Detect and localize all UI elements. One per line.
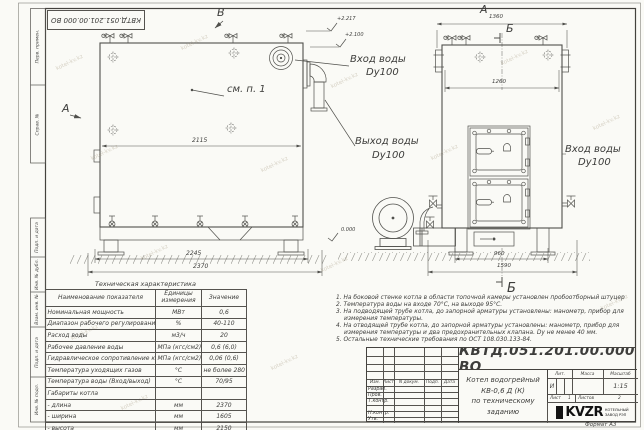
dim-2245: 2245 bbox=[186, 251, 201, 257]
col-podp: Подп. bbox=[424, 379, 441, 386]
cell-value bbox=[202, 388, 247, 400]
col-list: Лист bbox=[383, 379, 394, 386]
side-flange-right bbox=[561, 50, 571, 72]
table-row: Габариты котла bbox=[46, 388, 247, 400]
ground-hatch-right bbox=[338, 252, 590, 261]
table-row: - ширина мм 1605 bbox=[46, 411, 247, 423]
logo-mark bbox=[556, 406, 563, 419]
table-row: - длина мм 2370 bbox=[46, 399, 247, 411]
note-line: 1. На боковой стенке котла в области топ… bbox=[336, 295, 636, 302]
sheets-value: 2 bbox=[618, 396, 621, 401]
technical-notes: 1. На боковой стенке котла в области топ… bbox=[336, 295, 636, 344]
frame-label-inv-dubl: Инв. № дубл. bbox=[30, 257, 45, 292]
cell-parameter: Расход воды bbox=[46, 330, 156, 342]
see-note-callout: см. п. 1 bbox=[227, 85, 266, 95]
inlet-callout-left: Вход воды bbox=[350, 55, 406, 65]
cell-units: мм bbox=[156, 399, 202, 411]
cell-parameter: - длина bbox=[46, 399, 156, 411]
sheet-value: 1 bbox=[568, 396, 571, 401]
name-line1: Котел водогрейный bbox=[459, 375, 547, 386]
dim-1590: 1590 bbox=[497, 264, 511, 270]
cell-value: 40-110 bbox=[202, 318, 247, 330]
table-row: - высота мм 2150 bbox=[46, 422, 247, 430]
view-v-arrow bbox=[215, 21, 223, 28]
dim-2115: 2115 bbox=[192, 138, 207, 144]
cell-units: °С bbox=[156, 364, 202, 376]
lit-label: Лит. bbox=[548, 370, 572, 378]
tech-table: Наименование показателя Единицы измерени… bbox=[45, 289, 247, 430]
col-header-units: Единицы измерения bbox=[156, 290, 202, 307]
section-label-b-bottom: Б bbox=[507, 282, 516, 295]
cell-units bbox=[156, 388, 202, 400]
table-row: Расход воды м3/ч 20 bbox=[46, 330, 247, 342]
note-line: 3. На подводящей трубе котла, до запорно… bbox=[336, 309, 636, 323]
cell-units: м3/ч bbox=[156, 330, 202, 342]
top-stamp-code: КВТД.051.201.00.000 ВО bbox=[47, 10, 145, 30]
name-line3: по техническому заданию bbox=[459, 396, 547, 417]
table-row: Температура воды (Вход/выход) °С 70/95 bbox=[46, 376, 247, 388]
cell-units: МПа (кгс/см2) bbox=[156, 341, 202, 353]
sheet-label: Лист bbox=[550, 396, 561, 401]
table-row: Диапазон рабочего регулирования % 40-110 bbox=[46, 318, 247, 330]
section-label-b-top: Б bbox=[506, 23, 514, 34]
cell-value: 1605 bbox=[202, 411, 247, 423]
format-label: Формат А3 bbox=[585, 423, 616, 429]
inlet-dn-right: Dy100 bbox=[578, 158, 611, 168]
logo-word: KVZR bbox=[565, 405, 603, 420]
cell-units: МВт bbox=[156, 307, 202, 319]
dim-1360: 1360 bbox=[489, 15, 503, 21]
cell-value: 70/95 bbox=[202, 376, 247, 388]
cell-units: МПа (кгс/см2) bbox=[156, 353, 202, 365]
table-row: Гидравлическое сопротивление котла МПа (… bbox=[46, 353, 247, 365]
cell-units: мм bbox=[156, 422, 202, 430]
mass-label: Масса bbox=[572, 370, 603, 378]
note-line: 2. Температура воды на входе 70°С, на вы… bbox=[336, 302, 636, 309]
sheets-label: Листов bbox=[578, 396, 594, 401]
logo-sub2: ЗАВОД РЭП bbox=[605, 413, 629, 417]
cell-value: 0,6 (6,0) bbox=[202, 341, 247, 353]
cell-parameter: Гидравлическое сопротивление котла bbox=[46, 353, 156, 365]
cell-parameter: Диапазон рабочего регулирования bbox=[46, 318, 156, 330]
col-dokum: N докум. bbox=[394, 379, 424, 386]
cell-value: 2370 bbox=[202, 399, 247, 411]
frame-label-podp-data-2: Подп. и дата bbox=[30, 327, 45, 377]
table-row: Рабочее давление воды МПа (кгс/см2) 0,6 … bbox=[46, 341, 247, 353]
elevation-2100: +2.100 bbox=[345, 33, 364, 38]
cell-units: °С bbox=[156, 376, 202, 388]
view-label-a-left: А bbox=[62, 103, 70, 114]
frame-label-perv-primen: Перв. примен. bbox=[30, 8, 45, 85]
cell-value: 0,6 bbox=[202, 307, 247, 319]
cell-parameter: Температура уходящих газов bbox=[46, 364, 156, 376]
cell-units: % bbox=[156, 318, 202, 330]
view-a-arrow bbox=[70, 115, 81, 118]
frame-label-vzam-inv: Взам. инв. № bbox=[30, 292, 45, 327]
cell-value: 2150 bbox=[202, 422, 247, 430]
scale-label: Масштаб bbox=[603, 370, 638, 378]
table-row: Номинальная мощность МВт 0,6 bbox=[46, 307, 247, 319]
cell-parameter: Рабочее давление воды bbox=[46, 341, 156, 353]
frame-label-inv-podl: Инв. № подл. bbox=[30, 377, 45, 422]
cell-value: не более 280 bbox=[202, 364, 247, 376]
document-code: КВТД.051.201.00.000 ВО bbox=[458, 348, 637, 370]
title-block: Изм. Лист N докум. Подп. Дата Разраб. Пр… bbox=[366, 347, 636, 422]
drawing-sheet: kotel-kv.kz kotel-kv.kz kotel-kv.kz kote… bbox=[0, 0, 644, 430]
cell-parameter: - ширина bbox=[46, 411, 156, 423]
note-line: 4. На отводящей трубе котла, до запорной… bbox=[336, 323, 636, 337]
cell-units: мм bbox=[156, 411, 202, 423]
side-view bbox=[100, 43, 303, 227]
row-utv: Утв. bbox=[367, 417, 394, 423]
table-row: Температура уходящих газов °С не более 2… bbox=[46, 364, 247, 376]
cell-parameter: Температура воды (Вход/выход) bbox=[46, 376, 156, 388]
cell-value: 20 bbox=[202, 330, 247, 342]
view-label-a-top: А bbox=[480, 4, 488, 15]
elevation-2217: +2.217 bbox=[337, 17, 356, 22]
lit-value: И bbox=[548, 378, 556, 394]
frame-label-sprav: Справ. № bbox=[30, 85, 45, 163]
col-izm: Изм. bbox=[367, 379, 383, 386]
outlet-dn: Dy100 bbox=[372, 151, 405, 161]
tech-table-title: Техническая характеристика bbox=[45, 280, 246, 288]
name-line2: КВ-0,6 Д (К) bbox=[459, 386, 547, 397]
document-name: Котел водогрейный КВ-0,6 Д (К) по технич… bbox=[458, 370, 547, 423]
elevation-zero: 0.000 bbox=[341, 228, 355, 233]
col-header-value: Значение bbox=[202, 290, 247, 307]
top-flange bbox=[270, 47, 293, 70]
note-line: 5. Остальные технические требования по О… bbox=[336, 337, 636, 344]
scale-value: 1:15 bbox=[603, 378, 638, 394]
dim-2370: 2370 bbox=[193, 264, 208, 270]
dim-960: 960 bbox=[494, 252, 505, 258]
cell-parameter: Номинальная мощность bbox=[46, 307, 156, 319]
cell-value: 0,06 (0,6) bbox=[202, 353, 247, 365]
tech-table-header: Наименование показателя Единицы измерени… bbox=[46, 290, 247, 307]
outlet-pipe bbox=[303, 60, 327, 111]
manufacturer-logo: KVZR КОТЕЛЬНЫЙ ЗАВОД РЭП bbox=[547, 402, 637, 423]
outlet-callout: Выход воды bbox=[355, 137, 419, 147]
cell-parameter: Габариты котла bbox=[46, 388, 156, 400]
frame-label-podp-data-1: Подп. и дата bbox=[30, 218, 45, 257]
inlet-callout-right: Вход воды bbox=[565, 145, 621, 155]
col-header-name: Наименование показателя bbox=[46, 290, 156, 307]
elevation-marks bbox=[306, 23, 346, 241]
inlet-dn-left: Dy100 bbox=[366, 68, 399, 78]
view-label-v: В bbox=[217, 7, 225, 18]
dim-1260: 1260 bbox=[492, 80, 506, 86]
cell-parameter: - высота bbox=[46, 422, 156, 430]
blower-fan bbox=[373, 198, 456, 250]
col-data: Дата bbox=[441, 379, 458, 386]
